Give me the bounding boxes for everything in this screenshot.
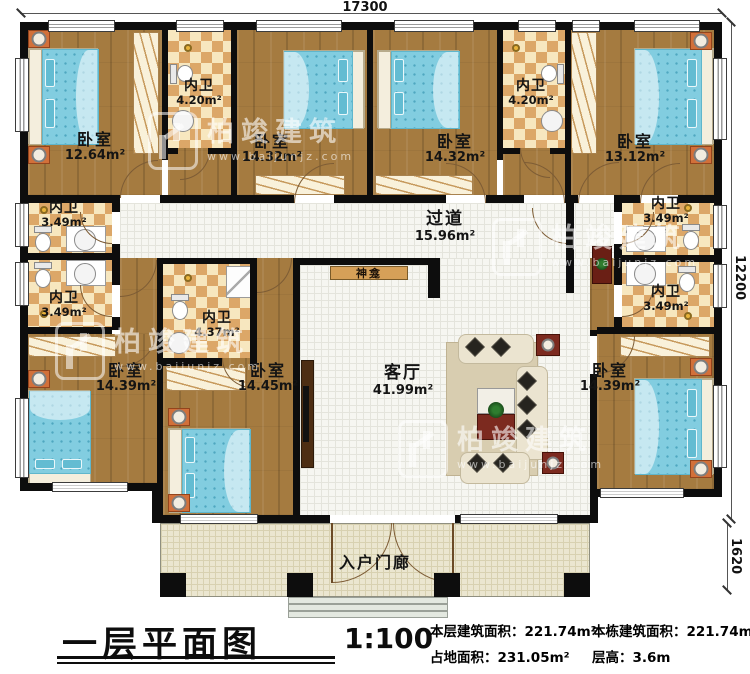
toilet-icon xyxy=(678,266,696,273)
sink-icon xyxy=(634,263,656,285)
plan-title: 一层平面图 xyxy=(62,616,262,667)
nightstand xyxy=(28,30,50,48)
dimension-porch-height: 1620 xyxy=(728,538,743,574)
entry-step xyxy=(288,611,448,618)
toilet-icon xyxy=(35,233,51,252)
water-valve-icon xyxy=(184,44,192,52)
wall xyxy=(565,30,571,203)
shower-icon xyxy=(226,266,252,298)
wall xyxy=(287,573,313,597)
water-valve-icon xyxy=(684,204,692,212)
bed xyxy=(634,48,714,144)
window xyxy=(572,20,600,32)
toilet-icon xyxy=(682,224,700,231)
window xyxy=(600,488,684,498)
window xyxy=(713,385,727,468)
sink-icon xyxy=(74,263,96,285)
stat-label: 层高： xyxy=(592,650,633,666)
window xyxy=(713,58,727,140)
wall xyxy=(112,195,120,212)
wall xyxy=(162,30,168,160)
bed xyxy=(28,48,98,144)
wall xyxy=(231,30,237,203)
door-leaf xyxy=(331,523,333,583)
sink-icon xyxy=(541,110,563,132)
dimension-right-height: 12200 xyxy=(732,255,747,300)
tv-icon xyxy=(303,386,309,442)
title-underline xyxy=(57,662,335,664)
plan-scale: 1:100 xyxy=(344,622,433,655)
water-valve-icon xyxy=(40,310,48,318)
nightstand xyxy=(690,32,712,50)
nightstand xyxy=(28,370,50,388)
bed xyxy=(377,50,459,128)
side-table xyxy=(536,334,560,356)
water-valve-icon xyxy=(684,312,692,320)
bed xyxy=(283,50,365,128)
sink-icon xyxy=(168,332,190,354)
wall xyxy=(614,195,622,212)
wall xyxy=(258,515,330,523)
toilet-icon xyxy=(172,301,188,320)
sofa xyxy=(460,452,530,484)
entry-step xyxy=(288,604,448,611)
toilet-icon xyxy=(541,65,557,82)
nightstand xyxy=(690,146,712,164)
wall xyxy=(28,327,112,334)
window xyxy=(518,20,556,32)
toilet-icon xyxy=(34,262,52,269)
wardrobe xyxy=(571,32,597,154)
wall xyxy=(590,330,597,336)
wall xyxy=(566,203,574,293)
wall xyxy=(208,148,231,154)
wall xyxy=(157,258,163,523)
wardrobe xyxy=(28,336,116,357)
water-valve-icon xyxy=(512,44,520,52)
stat-value: 231.05m² xyxy=(498,650,570,666)
toilet-icon xyxy=(683,231,699,250)
window xyxy=(48,20,115,32)
window xyxy=(634,20,700,32)
stat-label: 占地面积： xyxy=(430,650,498,666)
wall xyxy=(168,148,178,154)
dimension-top-width: 17300 xyxy=(310,0,420,15)
wall xyxy=(163,258,257,264)
toilet-icon xyxy=(171,294,189,301)
window xyxy=(256,20,342,32)
entry-step xyxy=(288,597,448,604)
sink-icon xyxy=(172,110,194,132)
nightstand xyxy=(690,358,712,376)
stat-footprint-area: 占地面积：231.05m² xyxy=(430,646,570,666)
window xyxy=(713,264,727,308)
shrine-shelf: 神龛 xyxy=(330,266,408,280)
window xyxy=(176,20,224,32)
wall xyxy=(28,195,120,203)
stat-value: 221.74m² xyxy=(687,624,750,640)
stat-floor-height: 层高：3.6m xyxy=(592,646,670,666)
wall xyxy=(434,573,460,597)
bed xyxy=(28,390,90,486)
wall xyxy=(293,258,440,265)
wall xyxy=(564,573,590,597)
wall xyxy=(112,317,120,330)
wall xyxy=(367,30,373,203)
wall xyxy=(160,573,186,597)
floor-plan-canvas: 卧室 12.64m² 内卫 4.20m² 卧室 14.32m² 卧室 14.32… xyxy=(0,0,750,674)
wall xyxy=(112,244,120,285)
toilet-icon xyxy=(557,64,564,84)
stat-label: 本层建筑面积： xyxy=(430,624,525,640)
wall xyxy=(160,195,294,203)
stat-label: 本栋建筑面积： xyxy=(592,624,687,640)
nightstand xyxy=(168,408,190,426)
wall xyxy=(590,374,597,497)
wall xyxy=(497,30,503,160)
water-valve-icon xyxy=(40,206,48,214)
nightstand xyxy=(690,460,712,478)
stat-value: 3.6m xyxy=(633,650,671,666)
toilet-icon xyxy=(34,226,52,233)
window xyxy=(460,514,558,524)
toilet-icon xyxy=(170,64,177,84)
window xyxy=(15,262,29,306)
wall xyxy=(503,148,520,154)
toilet-icon xyxy=(679,273,695,292)
wall xyxy=(558,515,598,523)
window xyxy=(713,205,727,249)
window xyxy=(15,203,29,247)
wall xyxy=(614,244,622,285)
wall xyxy=(250,258,257,366)
wall xyxy=(28,253,112,260)
window xyxy=(15,398,29,478)
wall xyxy=(678,195,714,203)
wall xyxy=(20,22,722,30)
wall xyxy=(622,255,714,262)
window xyxy=(180,514,258,524)
toilet-icon xyxy=(35,269,51,288)
nightstand xyxy=(28,146,50,164)
wall xyxy=(550,148,565,154)
plant-icon xyxy=(596,258,608,270)
wall xyxy=(334,195,446,203)
stat-value: 221.74m² xyxy=(525,624,597,640)
window xyxy=(15,58,29,132)
window xyxy=(52,482,128,492)
side-table xyxy=(542,452,564,474)
wall xyxy=(293,258,300,515)
toilet-icon xyxy=(177,65,193,82)
wardrobe xyxy=(133,32,159,154)
nightstand xyxy=(168,494,190,512)
water-valve-icon xyxy=(184,274,192,282)
window xyxy=(394,20,474,32)
title-underline xyxy=(57,656,335,659)
stat-building-area: 本栋建筑面积：221.74m² xyxy=(592,620,750,640)
wall xyxy=(163,358,222,366)
stat-floor-area: 本层建筑面积：221.74m² xyxy=(430,620,597,640)
wall xyxy=(597,327,714,334)
plant-icon xyxy=(488,402,504,418)
wall xyxy=(486,195,524,203)
